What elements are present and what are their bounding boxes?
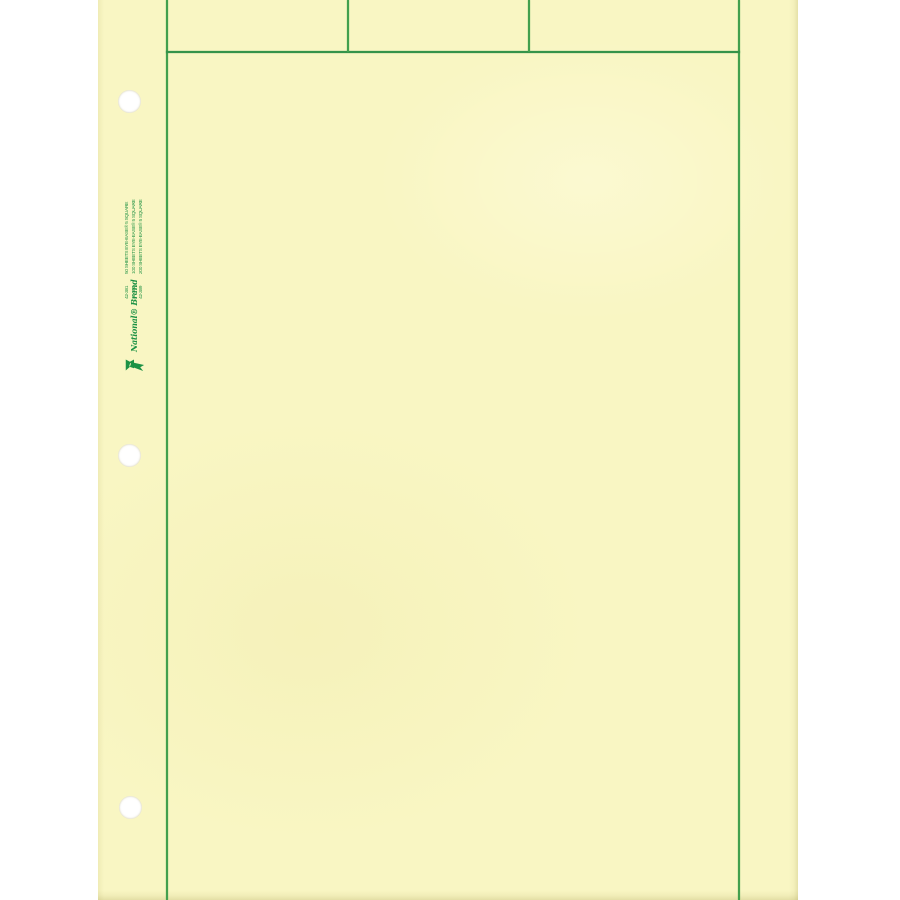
item-number: 42-381: [124, 286, 130, 299]
item-number-list: 42-381 42-382 42-389: [124, 283, 145, 299]
sheet-count-line: 200 SHEETS EYE-EASE® 5 SQUARE: [138, 200, 144, 274]
punch-hole-middle: [118, 444, 141, 467]
header-cell-1: [168, 0, 347, 51]
header-cell-2: [349, 0, 528, 51]
engineering-pad-sheet: National® Brand 42-381 42-382 42-389 50 …: [98, 0, 798, 900]
header-divider-2: [528, 0, 530, 52]
sheet-count-line: 50 SHEETS EYE-EASE® 5 SQUARE: [124, 202, 130, 274]
header-cell-3: [530, 0, 738, 51]
item-number: 42-389: [138, 286, 144, 299]
left-margin-line: [166, 0, 168, 900]
right-margin-line: [738, 0, 740, 900]
sheet-count-list: 50 SHEETS EYE-EASE® 5 SQUARE 100 SHEETS …: [124, 190, 145, 274]
item-number: 42-382: [131, 286, 137, 299]
header-divider-1: [347, 0, 349, 52]
national-brand-ribbon-icon: [123, 354, 145, 376]
edge-print: National® Brand 42-381 42-382 42-389 50 …: [119, 192, 149, 376]
sheet-count-line: 100 SHEETS EYE-EASE® 5 SQUARE: [131, 200, 137, 274]
product-photo: National® Brand 42-381 42-382 42-389 50 …: [0, 0, 900, 900]
punch-hole-top: [118, 90, 141, 113]
punch-hole-bottom: [119, 796, 142, 819]
brand-logo-text: National® Brand: [130, 306, 139, 352]
header-bottom-line: [166, 51, 740, 53]
